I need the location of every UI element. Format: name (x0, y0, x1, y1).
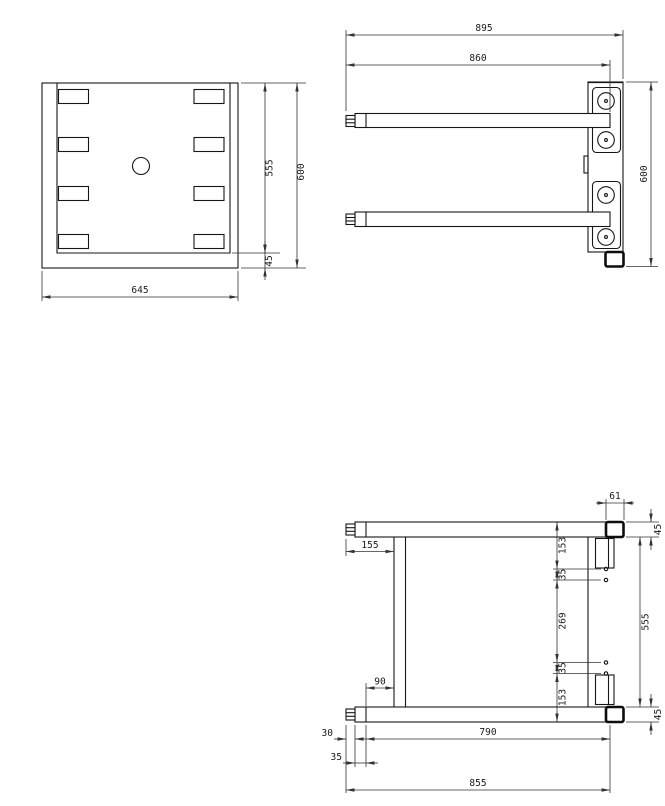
dim-front-overall-height: 600 (296, 163, 307, 180)
bolt-hole (604, 567, 607, 570)
fork-tip-fitting (346, 214, 355, 225)
dim-plan-collar-to-cross: 90 (374, 677, 386, 688)
bolt-hole (604, 661, 607, 664)
side-view-geometry (346, 82, 624, 267)
slot (59, 138, 89, 152)
mounting-pad-top (596, 539, 615, 569)
roller (598, 132, 615, 149)
dim-plan-hole-gap-bottom: 35 (558, 662, 569, 673)
dim-plan-pad-width: 61 (609, 491, 621, 502)
dim-plan-body-len: 790 (479, 727, 496, 738)
slot (59, 90, 89, 104)
roller (598, 187, 615, 204)
bolt-hole (604, 578, 607, 581)
center-hole (133, 158, 150, 175)
slot (194, 138, 224, 152)
roller-axle (605, 236, 608, 239)
plan-view: 61 45 555 45 153 (322, 491, 664, 793)
foot-pad (606, 252, 624, 267)
dim-plan-tip-len: 30 (322, 728, 334, 739)
dim-plan-pad-len-bottom: 153 (558, 689, 569, 706)
dim-plan-pad-spacing: 269 (558, 612, 569, 629)
foot-pad (606, 522, 624, 537)
upper-fork-arm (346, 114, 610, 128)
dim-front-width: 645 (131, 285, 148, 296)
dim-plan-inner-height: 555 (641, 613, 652, 630)
side-view: 895 860 600 (346, 23, 658, 267)
top-fork-bar (346, 522, 624, 537)
dim-plan-pad-len-top: 153 (558, 537, 569, 554)
dim-plan-collar-len: 35 (331, 752, 342, 763)
dim-plan-hole-gap-top: 35 (558, 569, 569, 580)
dim-plan-fork-thickness-top: 45 (653, 524, 664, 535)
technical-drawing: 645 555 45 600 (0, 0, 665, 806)
roller (598, 229, 615, 246)
fork-tip-fitting (346, 116, 355, 127)
roller-axle (605, 139, 608, 142)
foot-pad (606, 707, 624, 722)
mounting-pad-bottom (596, 675, 615, 705)
dim-side-overall-depth: 895 (475, 23, 492, 34)
side-tab (584, 156, 588, 173)
dim-plan-fork-thickness-bottom: 45 (653, 709, 664, 720)
drawing-sheet: 645 555 45 600 (0, 0, 665, 806)
roller-axle (605, 100, 608, 103)
roller (598, 93, 615, 110)
slot (194, 90, 224, 104)
front-view: 645 555 45 600 (42, 83, 307, 301)
lower-fork-arm (346, 212, 610, 227)
dim-plan-tip-to-cross: 155 (361, 540, 378, 551)
bottom-fork-bar (346, 707, 624, 722)
dim-side-overall-height: 600 (639, 165, 650, 182)
fork-tip-fitting (346, 709, 355, 720)
slot (59, 235, 89, 249)
slot (194, 187, 224, 201)
bolt-hole (604, 672, 607, 675)
slot (59, 187, 89, 201)
dim-front-base-gap: 45 (264, 255, 275, 266)
roller-axle (605, 194, 608, 197)
base-outer-plate (42, 83, 238, 268)
fork-tip-fitting (346, 524, 355, 535)
slot (194, 235, 224, 249)
dim-front-plate-height: 555 (265, 159, 276, 176)
plan-view-geometry (346, 522, 624, 722)
dim-plan-overall-len: 855 (469, 778, 486, 789)
front-view-geometry (42, 83, 238, 268)
dim-side-fork-length: 860 (469, 53, 486, 64)
